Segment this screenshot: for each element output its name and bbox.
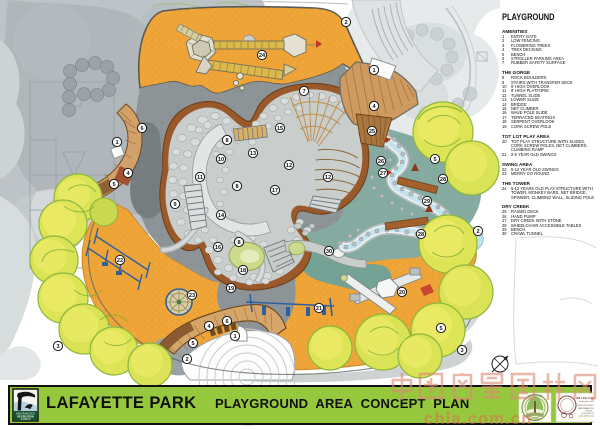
svg-text:3: 3 [460, 348, 463, 354]
svg-text:2: 2 [185, 357, 188, 363]
svg-text:10: 10 [218, 157, 224, 163]
svg-text:29: 29 [424, 199, 430, 205]
svg-text:22: 22 [117, 258, 123, 264]
svg-text:24: 24 [259, 53, 266, 59]
svg-text:chla.com.cn: chla.com.cn [424, 410, 533, 428]
svg-text:12: 12 [286, 163, 292, 169]
svg-text:28: 28 [440, 177, 446, 183]
svg-text:& PARKS: & PARKS [21, 418, 31, 421]
svg-text:6: 6 [225, 319, 228, 325]
svg-text:18: 18 [240, 268, 246, 274]
svg-text:1: 1 [372, 68, 375, 74]
svg-text:7: 7 [302, 89, 305, 95]
svg-text:9: 9 [173, 202, 176, 208]
svg-text:1: 1 [115, 140, 118, 146]
svg-text:11: 11 [197, 175, 203, 181]
svg-text:13: 13 [250, 151, 256, 157]
svg-text:19: 19 [228, 286, 234, 292]
svg-text:8: 8 [225, 138, 228, 144]
svg-text:27: 27 [380, 171, 386, 177]
svg-text:17: 17 [272, 188, 278, 194]
svg-text:8: 8 [237, 240, 240, 246]
svg-text:25: 25 [369, 129, 375, 135]
svg-text:14: 14 [218, 213, 225, 219]
svg-text:RECREATION: RECREATION [17, 415, 34, 418]
svg-text:5: 5 [191, 341, 194, 347]
svg-text:28: 28 [418, 232, 424, 238]
svg-text:16: 16 [215, 245, 221, 251]
svg-text:21: 21 [316, 306, 322, 312]
svg-text:12: 12 [325, 175, 331, 181]
svg-text:5: 5 [112, 182, 115, 188]
svg-text:2: 2 [476, 229, 479, 235]
svg-text:26: 26 [378, 159, 384, 165]
svg-text:6: 6 [140, 126, 143, 132]
svg-text:1: 1 [233, 334, 236, 340]
svg-text:30: 30 [326, 249, 332, 255]
svg-text:20: 20 [399, 290, 405, 296]
svg-text:15: 15 [277, 126, 283, 132]
svg-text:5: 5 [433, 157, 436, 163]
svg-text:8: 8 [235, 184, 238, 190]
svg-text:2: 2 [344, 20, 347, 26]
svg-text:5: 5 [439, 326, 442, 332]
svg-text:23: 23 [189, 293, 195, 299]
svg-text:3: 3 [56, 344, 59, 350]
